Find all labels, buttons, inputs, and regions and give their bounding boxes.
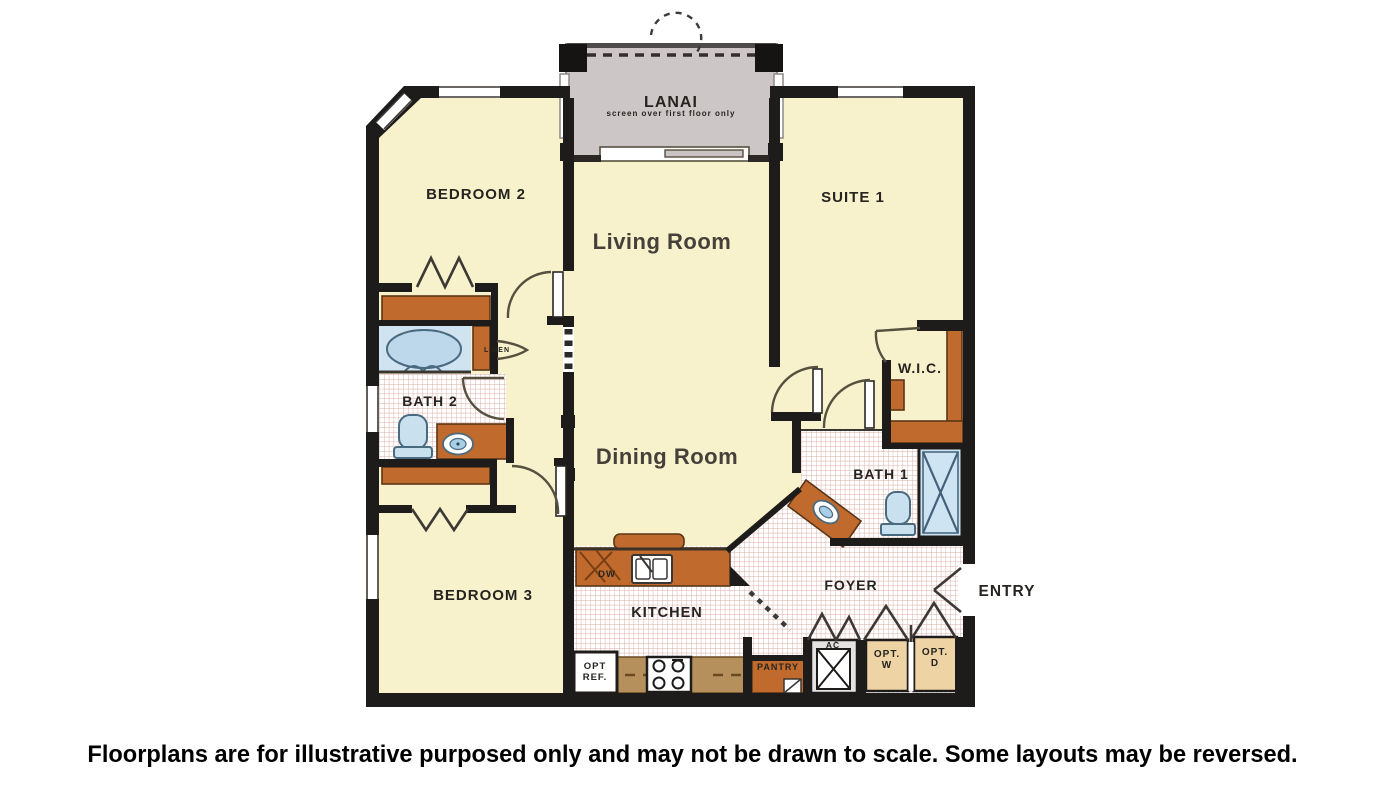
svg-text:OPT: OPT <box>584 661 607 672</box>
svg-text:W.I.C.: W.I.C. <box>898 360 942 376</box>
svg-text:screen over first floor only: screen over first floor only <box>607 109 736 118</box>
svg-text:W: W <box>882 660 892 671</box>
svg-text:DW: DW <box>598 569 616 580</box>
svg-text:PANTRY: PANTRY <box>757 662 799 672</box>
svg-text:Dining Room: Dining Room <box>596 444 738 469</box>
svg-text:OPT.: OPT. <box>874 649 900 660</box>
svg-text:KITCHEN: KITCHEN <box>631 605 702 621</box>
svg-text:BATH 1: BATH 1 <box>853 466 909 482</box>
svg-text:BEDROOM 2: BEDROOM 2 <box>426 186 526 203</box>
svg-text:LINEN: LINEN <box>484 347 510 354</box>
svg-text:AC: AC <box>826 640 840 650</box>
svg-text:BEDROOM 3: BEDROOM 3 <box>433 587 533 604</box>
svg-text:OPT.: OPT. <box>922 647 948 658</box>
svg-text:ENTRY: ENTRY <box>979 583 1036 600</box>
svg-text:D: D <box>931 658 939 669</box>
svg-text:SUITE 1: SUITE 1 <box>821 189 885 206</box>
svg-text:FOYER: FOYER <box>824 577 877 593</box>
svg-text:REF.: REF. <box>583 672 608 683</box>
svg-text:Living Room: Living Room <box>593 229 732 254</box>
svg-text:BATH 2: BATH 2 <box>402 393 458 409</box>
